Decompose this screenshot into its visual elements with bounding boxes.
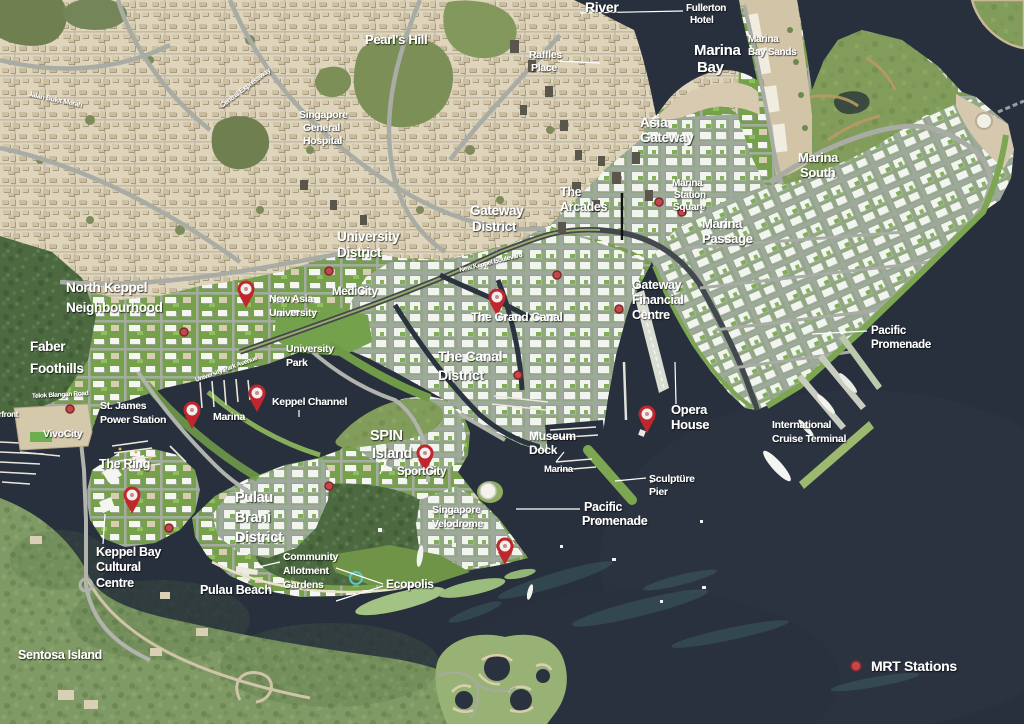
svg-text:MRT Stations: MRT Stations	[871, 658, 957, 674]
svg-text:VivoCity: VivoCity	[43, 428, 83, 440]
svg-text:Sentosa Island: Sentosa Island	[18, 648, 102, 662]
svg-text:Gateway: Gateway	[632, 278, 682, 292]
svg-text:Centre: Centre	[632, 308, 670, 322]
svg-text:Marina: Marina	[672, 178, 703, 189]
svg-text:Raffles: Raffles	[529, 49, 562, 61]
svg-text:Hospital: Hospital	[303, 135, 342, 147]
svg-text:Promenade: Promenade	[582, 514, 648, 528]
svg-text:Gateway: Gateway	[470, 203, 524, 218]
svg-text:Park: Park	[286, 357, 308, 369]
svg-text:The Ring: The Ring	[99, 457, 150, 471]
svg-text:Marina: Marina	[702, 216, 743, 231]
svg-text:Keppel Channel: Keppel Channel	[272, 396, 348, 408]
svg-text:Museum: Museum	[529, 429, 576, 443]
svg-text:General: General	[303, 122, 340, 134]
svg-text:University: University	[269, 307, 317, 319]
svg-text:Asia: Asia	[640, 115, 668, 130]
svg-text:South: South	[800, 165, 836, 180]
svg-text:North Keppel: North Keppel	[66, 280, 147, 295]
svg-text:Marina: Marina	[213, 411, 246, 423]
svg-text:Velodrome: Velodrome	[432, 518, 483, 530]
svg-text:District: District	[438, 367, 484, 383]
svg-text:Ecopolis: Ecopolis	[386, 577, 434, 591]
svg-text:Centre: Centre	[96, 576, 134, 590]
svg-text:Foothills: Foothills	[30, 361, 84, 376]
svg-text:The Canal: The Canal	[438, 348, 502, 364]
svg-text:MediCity: MediCity	[332, 286, 378, 298]
svg-text:Hotel: Hotel	[690, 15, 714, 26]
svg-text:Pacific: Pacific	[584, 500, 623, 514]
svg-text:Passage: Passage	[702, 231, 753, 246]
svg-text:Sculptüre: Sculptüre	[649, 473, 695, 485]
svg-text:The: The	[560, 185, 582, 199]
svg-text:Singapore: Singapore	[299, 109, 348, 121]
svg-text:The Grand Canal: The Grand Canal	[471, 310, 563, 324]
svg-text:Marina: Marina	[748, 34, 779, 45]
svg-text:Bay Sands: Bay Sands	[748, 47, 797, 58]
svg-text:Bay: Bay	[697, 59, 725, 76]
svg-text:Marina: Marina	[544, 464, 574, 475]
svg-text:Station: Station	[674, 190, 706, 201]
svg-text:Community: Community	[283, 551, 339, 563]
svg-text:House: House	[671, 417, 709, 432]
svg-text:urfront: urfront	[0, 410, 19, 419]
svg-text:Gardens: Gardens	[283, 579, 324, 591]
svg-text:SPIN: SPIN	[370, 428, 403, 444]
svg-text:District: District	[472, 219, 517, 234]
svg-text:University: University	[286, 343, 334, 355]
svg-text:Place: Place	[531, 62, 557, 74]
svg-text:Allotment: Allotment	[283, 565, 330, 577]
svg-text:Pier: Pier	[649, 486, 668, 498]
svg-text:District: District	[337, 245, 382, 260]
svg-text:Dock: Dock	[529, 443, 558, 457]
svg-text:Power Station: Power Station	[100, 414, 166, 426]
svg-text:SportCity: SportCity	[397, 466, 447, 478]
svg-text:Pearl's Hill: Pearl's Hill	[365, 32, 427, 47]
svg-text:Cultural: Cultural	[96, 560, 141, 574]
svg-text:Keppel Bay: Keppel Bay	[96, 545, 161, 559]
svg-text:Opera: Opera	[671, 402, 708, 417]
svg-text:Fullerton: Fullerton	[686, 3, 726, 14]
svg-text:Brani: Brani	[235, 510, 271, 526]
svg-text:International: International	[772, 419, 831, 431]
svg-text:Arcades: Arcades	[560, 200, 608, 214]
svg-text:Promenade: Promenade	[871, 339, 931, 351]
svg-text:Neighbourhood: Neighbourhood	[66, 300, 163, 315]
svg-text:Singapore: Singapore	[432, 504, 481, 516]
svg-text:River: River	[585, 0, 619, 15]
svg-text:Cruise Terminal: Cruise Terminal	[772, 433, 846, 445]
svg-text:Financial: Financial	[632, 293, 683, 307]
svg-text:Faber: Faber	[30, 339, 66, 354]
svg-text:Pulau Beach: Pulau Beach	[200, 583, 272, 597]
svg-text:Pulau: Pulau	[235, 490, 273, 506]
svg-text:New Asia: New Asia	[269, 293, 313, 305]
svg-text:Pacific: Pacific	[871, 325, 907, 337]
svg-text:District: District	[235, 530, 283, 546]
svg-text:University: University	[337, 229, 400, 244]
svg-text:Square: Square	[673, 202, 706, 213]
svg-text:St. James: St. James	[100, 400, 147, 412]
svg-text:Gateway: Gateway	[640, 130, 694, 145]
svg-text:Marina: Marina	[798, 150, 839, 165]
svg-text:Marina: Marina	[694, 42, 742, 59]
svg-text:Island: Island	[372, 446, 412, 462]
